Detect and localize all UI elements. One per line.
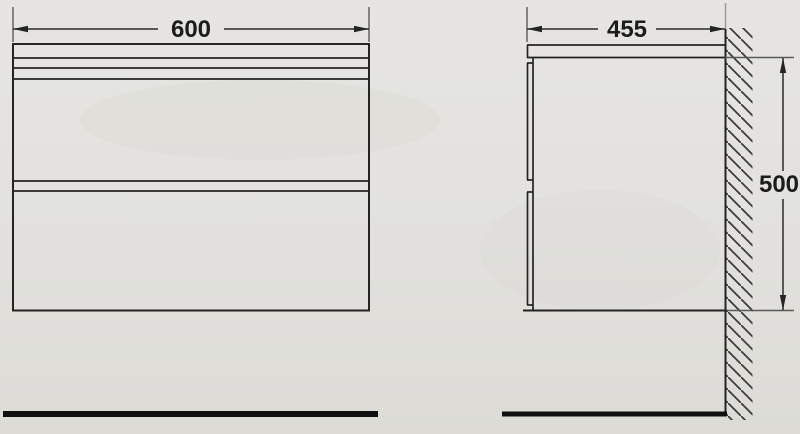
wall-hatch: [727, 28, 753, 420]
side-depth-label: 455: [607, 16, 647, 43]
front-width-label: 600: [171, 16, 211, 43]
drawing-canvas: 600 455: [0, 0, 800, 434]
scan-smudge: [80, 80, 440, 160]
technical-drawing: 600 455: [0, 0, 800, 434]
scan-smudge: [480, 190, 720, 310]
wall: [726, 3, 753, 420]
side-height-label: 500: [759, 171, 799, 198]
